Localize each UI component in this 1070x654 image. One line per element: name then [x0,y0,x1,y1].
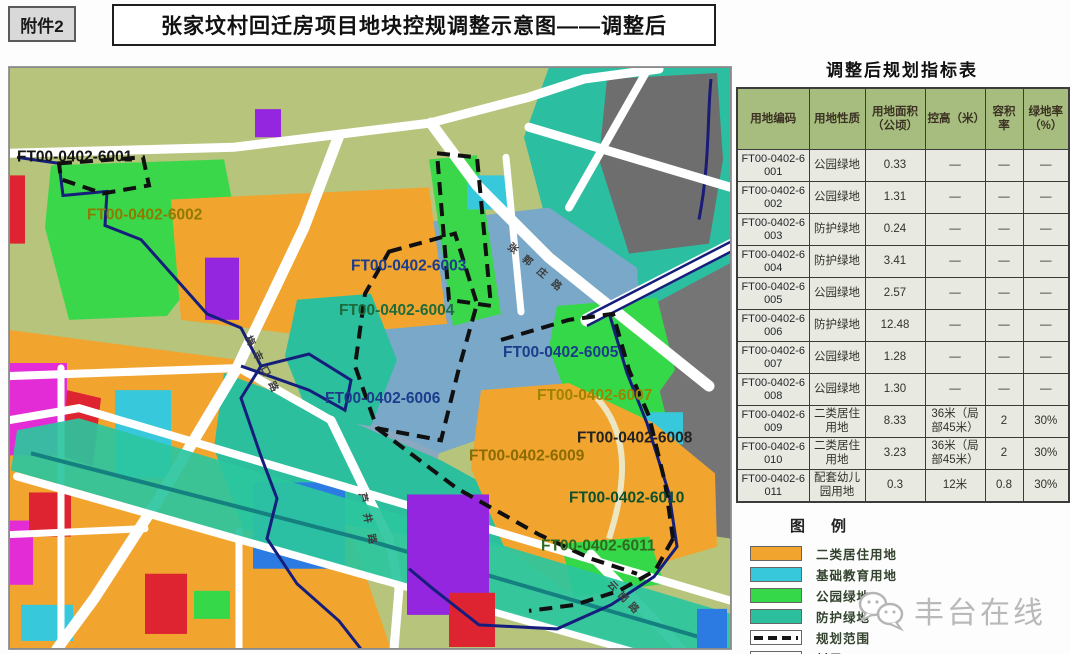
table-row: FT00-0402-6001公园绿地0.33——— [737,150,1069,182]
value-cell: — [985,310,1023,342]
parcel-label: FT00-0402-6001 [17,148,133,165]
value-cell: — [925,278,985,310]
value-cell: 3.41 [865,246,925,278]
value-cell: — [1023,214,1069,246]
value-cell: — [925,150,985,182]
parcel-label: FT00-0402-6006 [325,390,441,407]
planning-map: FT00-0402-6001FT00-0402-6002FT00-0402-60… [8,66,732,650]
value-cell: 0.33 [865,150,925,182]
value-cell: 36米（局部45米） [925,438,985,470]
value-cell: 8.33 [865,406,925,438]
value-cell: — [1023,150,1069,182]
value-cell: 30% [1023,406,1069,438]
parcel-label: FT00-0402-6011 [541,538,656,555]
table-row: FT00-0402-6004防护绿地3.41——— [737,246,1069,278]
value-cell: — [985,278,1023,310]
indicator-panel: 调整后规划指标表 用地编码用地性质用地面积（公顷）控高（米）容积率绿地率（%） … [736,56,1068,654]
value-cell: — [925,214,985,246]
legend: 图例 二类居住用地基础教育用地公园绿地防护绿地规划范围村界 [736,515,1068,654]
legend-swatch [750,546,802,561]
value-cell: 3.23 [865,438,925,470]
parcel-label: FT00-0402-6007 [537,387,652,404]
legend-title: 图例 [790,515,1068,536]
page: 附件2 张家坟村回迁房项目地块控规调整示意图——调整后 [0,0,1070,654]
table-row: FT00-0402-6002公园绿地1.31——— [737,182,1069,214]
value-cell: 0.24 [865,214,925,246]
parcel-code-cell: FT00-0402-6007 [737,342,809,374]
value-cell: — [925,374,985,406]
value-cell: — [925,342,985,374]
value-cell: — [985,246,1023,278]
parcel-code-cell: FT00-0402-6002 [737,182,809,214]
parcel-code-cell: FT00-0402-6005 [737,278,809,310]
parcel-label: FT00-0402-6003 [351,258,467,275]
watermark-text: 丰台在线 [914,588,1046,632]
legend-swatch [750,567,802,582]
value-cell: — [985,374,1023,406]
value-cell: 二类居住用地 [809,438,865,470]
table-row: FT00-0402-6008公园绿地1.30——— [737,374,1069,406]
value-cell: 12.48 [865,310,925,342]
value-cell: 防护绿地 [809,310,865,342]
value-cell: 二类居住用地 [809,406,865,438]
legend-swatch [750,609,802,624]
value-cell: 1.28 [865,342,925,374]
table-row: FT00-0402-6007公园绿地1.28——— [737,342,1069,374]
parcel-code-cell: FT00-0402-6006 [737,310,809,342]
value-cell: — [985,150,1023,182]
value-cell: 2 [985,438,1023,470]
value-cell: — [985,182,1023,214]
value-cell: 1.31 [865,182,925,214]
value-cell: — [985,342,1023,374]
table-row: FT00-0402-6010二类居住用地3.2336米（局部45米）230% [737,438,1069,470]
value-cell: 公园绿地 [809,182,865,214]
value-cell: — [925,182,985,214]
value-cell: 公园绿地 [809,374,865,406]
parcel-label: FT00-0402-6008 [577,429,693,446]
column-header: 容积率 [985,88,1023,150]
legend-item: 规划范围 [750,630,1068,645]
table-row: FT00-0402-6006防护绿地12.48——— [737,310,1069,342]
parcel-label: FT00-0402-6010 [569,489,684,506]
parcel-code-cell: FT00-0402-6004 [737,246,809,278]
parcel-label: FT00-0402-6005 [503,344,619,361]
column-header: 绿地率（%） [1023,88,1069,150]
page-title: 张家坟村回迁房项目地块控规调整示意图——调整后 [112,4,716,46]
value-cell: 防护绿地 [809,214,865,246]
wechat-bubbles-icon [856,588,908,632]
value-cell: 0.3 [865,470,925,503]
parcel-code-cell: FT00-0402-6011 [737,470,809,503]
legend-label: 二类居住用地 [816,544,897,563]
value-cell: 配套幼儿园用地 [809,470,865,503]
table-row: FT00-0402-6003防护绿地0.24——— [737,214,1069,246]
value-cell: 36米（局部45米） [925,406,985,438]
column-header: 用地性质 [809,88,865,150]
indicator-table-header-row: 用地编码用地性质用地面积（公顷）控高（米）容积率绿地率（%） [737,88,1069,150]
value-cell: 2 [985,406,1023,438]
legend-swatch [750,630,802,645]
value-cell: — [985,214,1023,246]
value-cell: 0.8 [985,470,1023,503]
legend-swatch [750,588,802,603]
indicator-table: 用地编码用地性质用地面积（公顷）控高（米）容积率绿地率（%） FT00-0402… [736,87,1070,503]
parcel-label: FT00-0402-6002 [87,207,203,224]
value-cell: — [1023,374,1069,406]
legend-item: 二类居住用地 [750,546,1068,561]
value-cell: 12米 [925,470,985,503]
value-cell: — [1023,278,1069,310]
value-cell: — [1023,310,1069,342]
value-cell: 30% [1023,470,1069,503]
value-cell: 防护绿地 [809,246,865,278]
column-header: 用地面积（公顷） [865,88,925,150]
parcel-code-cell: FT00-0402-6001 [737,150,809,182]
legend-label: 基础教育用地 [816,565,897,584]
value-cell: 30% [1023,438,1069,470]
value-cell: — [1023,246,1069,278]
column-header: 控高（米） [925,88,985,150]
parcel-label: FT00-0402-6004 [339,302,455,319]
parcel-code-cell: FT00-0402-6009 [737,406,809,438]
table-row: FT00-0402-6009二类居住用地8.3336米（局部45米）230% [737,406,1069,438]
dashed-line-sample [754,636,798,640]
indicator-table-body: FT00-0402-6001公园绿地0.33———FT00-0402-6002公… [737,150,1069,503]
parcel-code-cell: FT00-0402-6003 [737,214,809,246]
value-cell: 2.57 [865,278,925,310]
parcel-label: FT00-0402-6009 [469,447,585,464]
table-row: FT00-0402-6011配套幼儿园用地0.312米0.830% [737,470,1069,503]
value-cell: — [925,246,985,278]
value-cell: 1.30 [865,374,925,406]
legend-item: 基础教育用地 [750,567,1068,582]
planning-map-svg: FT00-0402-6001FT00-0402-6002FT00-0402-60… [9,67,731,649]
watermark: 丰台在线 [856,588,1046,632]
value-cell: — [925,310,985,342]
legend-label: 村界 [816,649,843,654]
parcel-code-cell: FT00-0402-6010 [737,438,809,470]
value-cell: 公园绿地 [809,278,865,310]
value-cell: 公园绿地 [809,150,865,182]
value-cell: 公园绿地 [809,342,865,374]
value-cell: — [1023,182,1069,214]
attachment-label: 附件2 [8,6,76,42]
table-row: FT00-0402-6005公园绿地2.57——— [737,278,1069,310]
parcel-code-cell: FT00-0402-6008 [737,374,809,406]
table-title: 调整后规划指标表 [736,56,1068,81]
value-cell: — [1023,342,1069,374]
column-header: 用地编码 [737,88,809,150]
